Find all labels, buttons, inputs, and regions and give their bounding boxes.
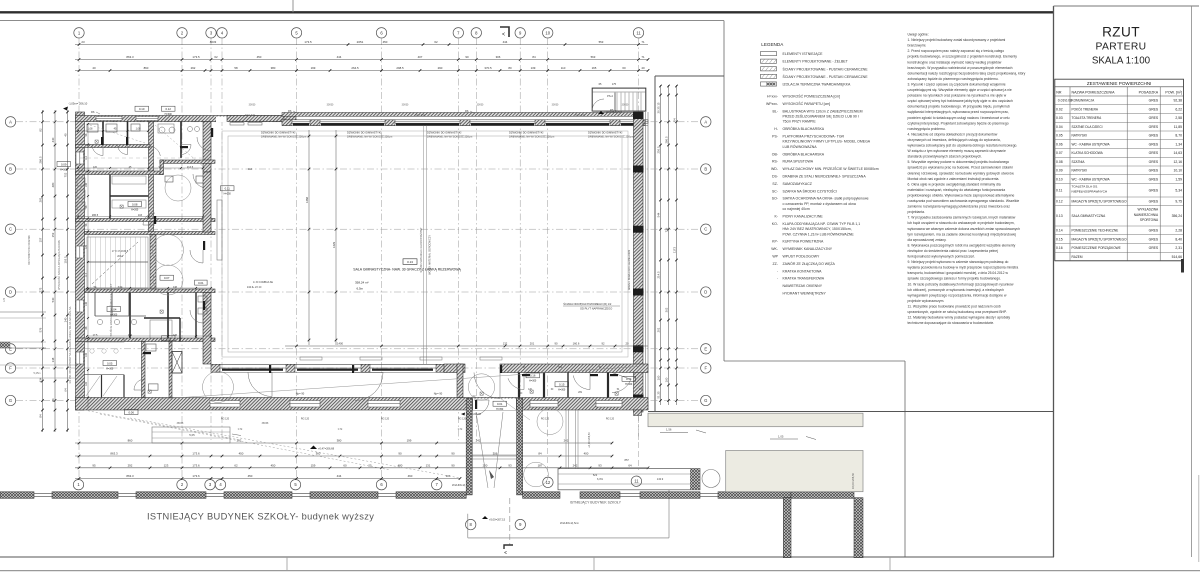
svg-text:KRZYWOLINIOWY FIRMY LIFTPLUS-: KRZYWOLINIOWY FIRMY LIFTPLUS- MODEL OMEG…	[783, 140, 871, 144]
svg-text:173.5: 173.5	[192, 55, 200, 59]
svg-text:PS-: PS-	[772, 135, 779, 139]
svg-text:B: B	[704, 167, 707, 172]
svg-text:ZAWÓR ZE ZŁĄCZKĄ DO WĘŻA: ZAWÓR ZE ZŁĄCZKĄ DO WĘŻA	[783, 261, 836, 266]
svg-text:30X30: 30X30	[477, 105, 484, 107]
svg-text:KLAPA ODDYMIAJĄCA NP. CSWW TYP: KLAPA ODDYMIAJĄCA NP. CSWW TYP F6-B 1,1	[783, 222, 861, 226]
svg-text:SKALA 1:100: SKALA 1:100	[1092, 56, 1151, 67]
svg-text:5,25m: 5,25m	[34, 372, 41, 375]
svg-text:+0,47=206,68: +0,47=206,68	[318, 447, 335, 451]
svg-text:DRABINA ZE STALI NIERDZEWNEJ-: DRABINA ZE STALI NIERDZEWNEJ- SPUSZCZANA	[783, 175, 867, 179]
svg-text:POMIESZCZENIE PORZĄDKOWE: POMIESZCZENIE PORZĄDKOWE	[1072, 246, 1121, 250]
svg-text:64: 64	[63, 388, 67, 392]
svg-text:NAWIERZCHNIA: NAWIERZCHNIA	[1134, 213, 1159, 217]
svg-text:projekcie wykonawczym.: projekcie wykonawczym.	[908, 299, 945, 303]
svg-text:okiennej i drzwiowej,: okiennej i drzwiowej, sprawdzić na budow…	[908, 171, 1015, 175]
svg-text:H=300: H=300	[529, 380, 537, 383]
svg-text:30X30: 30X30	[402, 105, 409, 107]
svg-text:ISTNIEJĄCY BUDYNEK SZKOŁY: ISTNIEJĄCY BUDYNEK SZKOŁY	[570, 501, 622, 505]
svg-text:funkcjonalności wykonywanych: funkcjonalności wykonywanych pomieszczeń…	[908, 255, 976, 259]
svg-text:0.13: 0.13	[407, 260, 413, 264]
svg-text:160: 160	[656, 375, 660, 380]
svg-text:146: 146	[173, 334, 178, 337]
svg-text:103: 103	[85, 182, 88, 187]
svg-text:D: D	[704, 290, 707, 295]
svg-text:1,05: 1,05	[778, 435, 784, 439]
svg-text:F: F	[9, 366, 12, 371]
svg-text:290: 290	[438, 66, 443, 70]
svg-text:0.09: 0.09	[61, 162, 67, 166]
svg-text:0.04: 0.04	[1056, 125, 1063, 129]
svg-text:60: 60	[622, 66, 626, 70]
svg-text:857: 857	[625, 458, 630, 462]
svg-text:ELEMENTY PROJEKTOWANE - ŻELBET: ELEMENTY PROJEKTOWANE - ŻELBET	[783, 59, 849, 64]
svg-text:SALA GIMNASTYCZNA- NAW. 30 GR: SALA GIMNASTYCZNA- NAW. 30 GRACZY Z ŁAWK…	[353, 268, 461, 272]
svg-text:38X38: 38X38	[177, 423, 184, 425]
svg-text:40: 40	[92, 66, 96, 70]
svg-text:5. Wszystkie wymiary: 5. Wszystkie wymiary podane w dokumentac…	[908, 160, 1010, 164]
svg-text:306: 306	[496, 55, 501, 59]
svg-text:lub bądź urządzeń w stosun: lub bądź urządzeń w stosunku do wskazany…	[908, 221, 1015, 225]
svg-text:173.6: 173.6	[192, 464, 200, 468]
svg-text:OD PŁYT NAPRAWCZEGO: OD PŁYT NAPRAWCZEGO	[580, 307, 612, 311]
svg-text:+ 2X 20: + 2X 20	[253, 286, 262, 289]
svg-text:175: 175	[612, 83, 617, 86]
svg-text:10: 10	[545, 30, 550, 35]
svg-text:NOŚNIK MATERIAŁU GEOMONTAŻOWY: NOŚNIK MATERIAŁU GEOMONTAŻOWY	[420, 227, 423, 272]
svg-text:E: E	[704, 346, 707, 351]
svg-text:132: 132	[503, 342, 508, 346]
svg-text:RS: RS	[610, 109, 614, 112]
svg-text:RURA SPUSTOWA: RURA SPUSTOWA	[783, 160, 814, 164]
svg-text:SZATNIE DLA DZIECI: SZATNIE DLA DZIECI	[1072, 125, 1103, 129]
svg-text:Npr= 242: Npr= 242	[575, 114, 585, 117]
svg-text:KO-: KO-	[772, 222, 779, 226]
svg-text:90: 90	[465, 55, 469, 59]
svg-text:173.5: 173.5	[304, 40, 312, 44]
svg-text:projektanta.: projektanta.	[908, 210, 926, 214]
svg-text:rozstrzygnięcia problemu.: rozstrzygnięcia problemu.	[908, 127, 946, 131]
svg-text:POW. [m²]: POW. [m²]	[1165, 91, 1182, 95]
svg-text:292: 292	[191, 66, 196, 70]
svg-text:173: 173	[38, 287, 42, 292]
svg-text:450: 450	[257, 55, 262, 59]
svg-text:90: 90	[451, 452, 455, 456]
svg-text:0.15: 0.15	[1056, 237, 1063, 241]
svg-text:523: 523	[593, 473, 598, 477]
svg-text:SIATKA OCHRONNA NA OKNA- siatk: SIATKA OCHRONNA NA OKNA- siatki poliprop…	[783, 197, 869, 201]
svg-text:112: 112	[85, 155, 88, 159]
svg-text:RG 120: RG 120	[458, 418, 467, 421]
svg-text:C M: C M	[458, 428, 462, 431]
svg-text:11. Wszystkie prace budowla: 11. Wszystkie prace budowlane prowadzić …	[908, 304, 1001, 308]
svg-text:BL-: BL-	[773, 109, 779, 113]
svg-text:transportu, budownictwa i g: transportu, budownictwa i gospodarki mor…	[908, 271, 1009, 275]
svg-text:materiałów i rozwiązań,: materiałów i rozwiązań, niezbędny do wła…	[908, 188, 1006, 192]
svg-text:niezbędne do średzienien: niezbędne do średzienienia całości prac …	[908, 249, 999, 253]
svg-text:zamienne rozwiązania wym: zamienne rozwiązania wymagają potwierdze…	[908, 205, 1011, 209]
svg-text:GRES: GRES	[1149, 125, 1159, 129]
svg-text:ŚCIANY PROJEKTOWANE - PUSTAKI: ŚCIANY PROJEKTOWANE - PUSTAKI CERAMICZNE	[783, 66, 869, 71]
svg-text:444: 444	[337, 55, 342, 59]
svg-text:1,59: 1,59	[1175, 177, 1182, 181]
svg-text:OD STRONY PD1 OKAPNIK: OD STRONY PD1 OKAPNIK	[28, 235, 31, 265]
svg-text:30X30: 30X30	[552, 105, 559, 107]
svg-text:1. Niniejszy projekt budowl: 1. Niniejszy projekt budowlany został sk…	[908, 38, 1006, 42]
svg-text:WPUST PODŁOGOWY: WPUST PODŁOGOWY	[783, 255, 821, 259]
svg-text:84: 84	[532, 55, 536, 59]
svg-text:ISTNIEJĄCY BUDYNEK SZKOŁY-: ISTNIEJĄCY BUDYNEK SZKOŁY- budynek wyższ…	[147, 512, 374, 522]
svg-text:wydania pozwolenia na budow: wydania pozwolenia na budowę w myśl prze…	[908, 266, 1019, 270]
svg-text:KURTYNA POWIETRZNA: KURTYNA POWIETRZNA	[783, 240, 824, 244]
svg-text:80: 80	[508, 66, 512, 70]
svg-text:SC-: SC-	[772, 189, 779, 193]
svg-text:GRES: GRES	[1149, 177, 1159, 181]
svg-text:WYSOKOŚĆ POMIESZCZENIA [cm]: WYSOKOŚĆ POMIESZCZENIA [cm]	[783, 94, 841, 99]
svg-text:RS-: RS-	[772, 160, 779, 164]
svg-text:standardu przewidywanych zda: standardu przewidywanych zdarzeń projekt…	[908, 155, 983, 159]
svg-text:WYSOKOŚĆ PARAPETU [cm]: WYSOKOŚĆ PARAPETU [cm]	[783, 101, 831, 106]
svg-text:NAWIETRZAK OKIENNY: NAWIETRZAK OKIENNY	[783, 284, 823, 288]
svg-text:H=260: H=260	[131, 208, 139, 211]
svg-text:KOMUNIKACJA: KOMUNIKACJA	[1072, 99, 1096, 103]
svg-text:SALA GIMNASTYCZNA: SALA GIMNASTYCZNA	[1072, 214, 1107, 218]
svg-text:WOZEK MATERIAŁ OGRODNICZY: WOZEK MATERIAŁ OGRODNICZY	[429, 235, 432, 275]
svg-text:1,56: 1,56	[666, 428, 672, 432]
svg-text:G: G	[9, 398, 12, 403]
svg-text:84: 84	[538, 452, 542, 456]
svg-text:0.16: 0.16	[1056, 246, 1063, 250]
svg-text:NAZWA POMIESZCZENIA: NAZWA POMIESZCZENIA	[1072, 91, 1116, 95]
svg-text:RS: RS	[91, 111, 95, 114]
svg-text:120: 120	[85, 381, 88, 386]
svg-text:konstrukcyjne oraz insta: konstrukcyjne oraz instalacje wymusić na…	[908, 60, 1002, 64]
svg-text:92: 92	[602, 342, 605, 346]
svg-text:KP-: KP-	[772, 240, 779, 244]
svg-text:60: 60	[343, 464, 347, 468]
svg-text:sprawie szczegółowego zakres: sprawie szczegółowego zakresu i formy pr…	[908, 277, 1002, 281]
svg-text:0.15: 0.15	[559, 383, 565, 387]
svg-text:RG 120: RG 120	[301, 418, 310, 421]
svg-text:30X30: 30X30	[622, 105, 629, 107]
svg-text:TOALETA TRENERA: TOALETA TRENERA	[1072, 116, 1103, 120]
svg-text:450: 450	[271, 464, 276, 468]
svg-text:sprawdzić po wykonaniu prac: sprawdzić po wykonaniu prac na budowie. …	[908, 166, 1013, 170]
svg-text:HM² 24V BEZ WIATROWNICY, 150X1: HM² 24V BEZ WIATROWNICY, 150X150cm,	[783, 227, 852, 231]
svg-text:ELEMENTY ISTNIEJĄCE: ELEMENTY ISTNIEJĄCE	[783, 52, 824, 56]
svg-text:62: 62	[214, 55, 218, 59]
svg-text:82: 82	[38, 128, 42, 132]
svg-text:25: 25	[368, 464, 372, 468]
svg-text:1,08: 1,08	[88, 128, 93, 131]
svg-text:860: 860	[128, 439, 133, 443]
svg-text:0.01\0.08: 0.01\0.08	[1058, 99, 1072, 103]
svg-text:BALUSTRADA WYS 110cm Z ZABEZPI: BALUSTRADA WYS 110cm Z ZABEZPIECZENIEM	[783, 109, 863, 113]
svg-text:PRZED ZEŚLIZGIWANIEM SIĘ DZIEC: PRZED ZEŚLIZGIWANIEM SIĘ DZIECI LUB 90 I	[783, 114, 859, 119]
svg-text:POW. CZYNNA 1,21m² LUB RÓWNOWA: POW. CZYNNA 1,21m² LUB RÓWNOWAŻNE	[783, 231, 855, 236]
svg-text:wykonawca we własnym zakres: wykonawca we własnym zakresie dokona wsz…	[908, 227, 1021, 231]
svg-text:dla wprowadzonej zmiany.: dla wprowadzonej zmiany.	[908, 238, 947, 242]
svg-text:173: 173	[3, 297, 6, 302]
svg-text:OBRÓBKA BLACHARSKA: OBRÓBKA BLACHARSKA	[783, 126, 825, 131]
svg-text:H=300: H=300	[106, 367, 114, 370]
svg-text:62: 62	[434, 40, 438, 44]
svg-text:IZOLACJA TERMICZNA TWARDA/MIĘK: IZOLACJA TERMICZNA TWARDA/MIĘKKA	[783, 83, 851, 87]
svg-text:GRES: GRES	[1149, 142, 1159, 146]
svg-text:WC - KABINA USTĘPOWA: WC - KABINA USTĘPOWA	[1072, 142, 1111, 146]
svg-text:dokumentacji projektu budowl: dokumentacji projektu budowlanego. W prz…	[908, 105, 1011, 109]
svg-text:286.5: 286.5	[38, 156, 42, 163]
svg-text:30.35.15: 30.35.15	[656, 102, 660, 113]
svg-text:GRES: GRES	[1149, 107, 1159, 111]
svg-text:8. Wykonawca poszczególnych: 8. Wykonawca poszczególnych robót ma uwz…	[908, 243, 1016, 247]
svg-text:0.07: 0.07	[164, 276, 170, 280]
svg-text:380: 380	[337, 439, 342, 443]
svg-text:0.12: 0.12	[1056, 200, 1063, 204]
svg-text:0.02: 0.02	[1056, 107, 1063, 111]
svg-text:370.5: 370.5	[484, 66, 492, 70]
svg-text:143.9: 143.9	[657, 477, 664, 481]
svg-text:F: F	[705, 366, 708, 371]
svg-text:Montaż obok naś zgodnie z: Montaż obok naś zgodnie z zaleceniami in…	[908, 177, 1000, 181]
svg-text:LEGENDA: LEGENDA	[761, 42, 784, 47]
svg-text:0.12: 0.12	[165, 107, 171, 111]
svg-text:5,34: 5,34	[1175, 189, 1182, 193]
svg-text:160: 160	[664, 377, 668, 382]
svg-text:173.6: 173.6	[192, 474, 200, 478]
svg-text:120: 120	[93, 166, 98, 169]
svg-text:uzupełniającymi się. Wszystk: uzupełniającymi się. Wszystkie elementy …	[908, 88, 1012, 92]
svg-text:wątpliwości interpretacyjny: wątpliwości interpretacyjnych, wykonawca…	[908, 110, 1010, 114]
svg-text:450: 450	[248, 474, 253, 478]
svg-text:H=300: H=300	[60, 168, 68, 171]
svg-text:544: 544	[656, 212, 660, 217]
svg-text:153: 153	[51, 232, 55, 237]
svg-text:12. Materiały budowlane win: 12. Materiały budowlane winny posiadać w…	[908, 316, 1011, 320]
svg-text:863.3: 863.3	[126, 55, 134, 59]
svg-text:RAZEM: RAZEM	[1072, 255, 1083, 259]
svg-text:SO-: SO-	[772, 197, 779, 201]
svg-text:165: 165	[592, 66, 597, 70]
svg-text:576: 576	[38, 327, 42, 332]
svg-text:zobowiązany będzie do pisem: zobowiązany będzie do pisemnego rozstrzy…	[908, 77, 999, 81]
svg-text:LUB RÓWNOWAŻNA: LUB RÓWNOWAŻNA	[783, 144, 818, 149]
svg-text:WYJŚCIE EWAKUACYJNE ŚWIETLICA: WYJŚCIE EWAKUACYJNE ŚWIETLICA SZKOŁY	[110, 283, 113, 336]
svg-text:GRES: GRES	[1149, 189, 1159, 193]
svg-text:WYŁAZ DACHOWY MIN. PRZEJŚCIE W: WYŁAZ DACHOWY MIN. PRZEJŚCIE W ŚWIETLE 8…	[783, 166, 879, 171]
svg-text:480: 480	[51, 182, 55, 187]
svg-text:3. Rysunki i części opisow: 3. Rysunki i części opisowe są częściami…	[908, 82, 1006, 86]
svg-text:SZATNIA: SZATNIA	[1072, 160, 1086, 164]
svg-text:103.5: 103.5	[63, 256, 67, 263]
svg-text:B: B	[9, 167, 12, 172]
svg-text:4. Niezależnie od sto: 4. Niezależnie od stopnia dokładności i …	[908, 132, 998, 136]
svg-text:RD 159- PAS NAPRAWY NA OKŁADZI: RD 159- PAS NAPRAWY NA OKŁADZICE 220cm, …	[69, 306, 72, 383]
svg-text:projektu budowlanego, w szc: projektu budowlanego, w szczególności z …	[908, 55, 1018, 59]
svg-text:KLATKA SCHODOWA: KLATKA SCHODOWA	[1072, 151, 1104, 155]
svg-text:RG 120: RG 120	[541, 418, 550, 421]
svg-text:20A1: 20A1	[117, 255, 123, 258]
svg-text:C: C	[9, 227, 12, 232]
svg-text:GRES: GRES	[1149, 134, 1159, 138]
svg-text:11: 11	[636, 30, 641, 35]
svg-text:14,63: 14,63	[1174, 151, 1183, 155]
svg-text:projektowanego obiektu. Wyko: projektowanego obiektu. Wykonawca może z…	[908, 193, 1015, 197]
svg-text:23: 23	[81, 40, 85, 44]
svg-text:242: 242	[573, 464, 578, 468]
svg-text:MAGAZYN SPRZĘTU SPORTOWEGO: MAGAZYN SPRZĘTU SPORTOWEGO	[1072, 200, 1128, 204]
svg-text:0.09: 0.09	[1056, 169, 1063, 173]
svg-text:140: 140	[63, 317, 67, 322]
svg-text:9. Niniejszy projekt wykona: 9. Niniejszy projekt wykonano w zakresie…	[908, 260, 1009, 264]
svg-text:264.5: 264.5	[351, 66, 359, 70]
svg-text:co najmniej 40cm: co najmniej 40cm	[783, 207, 810, 211]
svg-text:tym rozwiązaniem, ma za za: tym rozwiązaniem, ma za zadanie dokonać …	[908, 232, 1017, 236]
svg-text:114: 114	[248, 168, 253, 171]
svg-text:wymaganiami powyższego r: wymaganiami powyższego rozporządzenia, i…	[908, 293, 1007, 297]
svg-text:863.3: 863.3	[126, 474, 134, 478]
svg-text:WYSOKOŚĆ SZKOŁA ISTNIEJĄCA BUD: WYSOKOŚĆ SZKOŁA ISTNIEJĄCA BUDOWA	[58, 240, 61, 290]
svg-text:199: 199	[311, 66, 316, 70]
svg-text:powinien zgłosić to świadcz: powinien zgłosić to świadczącym usługi n…	[908, 116, 1010, 120]
svg-text:11: 11	[634, 479, 639, 484]
svg-text:rozwiązania pod warunkiem z: rozwiązania pod warunkiem zachowania wym…	[908, 199, 1020, 203]
svg-text:123: 123	[164, 464, 169, 468]
svg-text:450: 450	[239, 452, 244, 456]
svg-text:157: 157	[38, 237, 42, 242]
svg-text:90: 90	[555, 342, 558, 346]
svg-text:62: 62	[234, 464, 238, 468]
svg-text:286.5: 286.5	[664, 136, 668, 143]
svg-text:H=300: H=300	[558, 389, 566, 392]
svg-text:444: 444	[337, 474, 342, 478]
svg-text:0.06: 0.06	[128, 410, 134, 414]
svg-text:HYDRANT WEWNĘTRZNY: HYDRANT WEWNĘTRZNY	[783, 292, 827, 296]
svg-text:NR: NR	[1056, 91, 1062, 95]
svg-text:uprawnionych, zgodnie ze sz: uprawnionych, zgodnie ze sztuką budowlan…	[908, 310, 1007, 314]
svg-text:G: G	[704, 398, 707, 403]
svg-text:6. Okna ujęte w projekcie: 6. Okna ujęte w projekcie uwzględniają s…	[908, 182, 1001, 186]
svg-text:ZNAJDUJĄ 5cm: ZNAJDUJĄ 5cm	[560, 521, 579, 525]
svg-text:75cm PRZY RAMPIE: 75cm PRZY RAMPIE	[783, 120, 817, 124]
svg-text:10. W razie potrzeby dodat: 10. W razie potrzeby dodatkowych informa…	[908, 282, 1015, 286]
svg-text:pokazane na rysunkach oraz: pokazane na rysunkach oraz pokazane na r…	[908, 94, 1007, 98]
svg-text:199: 199	[407, 439, 412, 443]
svg-text:SZ-: SZ-	[772, 182, 778, 186]
svg-text:Uwagi ogólne:: Uwagi ogólne:	[908, 33, 929, 37]
svg-text:H=300: H=300	[165, 113, 173, 116]
svg-text:ZESTAWIENIE POWIERZCHNI: ZESTAWIENIE POWIERZCHNI	[1087, 81, 1152, 86]
svg-text:2051: 2051	[357, 40, 364, 44]
svg-text:WYMIENNIK KANALIZACYJNY: WYMIENNIK KANALIZACYJNY	[783, 247, 833, 251]
svg-text:0.08: 0.08	[132, 202, 138, 206]
svg-text:PARTERU: PARTERU	[1095, 42, 1146, 53]
svg-text:ZZ-: ZZ-	[773, 262, 779, 266]
svg-text:WD-: WD-	[771, 167, 779, 171]
svg-text:16,00=206,50: 16,00=206,50	[851, 472, 855, 488]
svg-text:1400: 1400	[337, 342, 343, 346]
svg-text:branżowych. W przypadku roz: branżowych. W przypadku rozbieżności w p…	[908, 66, 1013, 70]
svg-text:GRES: GRES	[1149, 169, 1159, 173]
svg-text:1,34: 1,34	[1175, 142, 1182, 146]
svg-text:RG 120: RG 120	[381, 418, 390, 421]
svg-text:12: 12	[546, 480, 551, 485]
svg-text:93: 93	[508, 464, 512, 468]
svg-text:540: 540	[51, 297, 55, 302]
svg-text:0.01: 0.01	[198, 281, 204, 285]
svg-text:0.05: 0.05	[107, 361, 113, 365]
svg-text:części opisowej winny być: części opisowej winny być traktowane jak…	[908, 99, 1014, 103]
svg-text:RG 120: RG 120	[606, 418, 615, 421]
svg-text:10,10: 10,10	[1174, 169, 1183, 173]
svg-text:444: 444	[503, 40, 508, 44]
svg-text:A: A	[501, 32, 506, 35]
svg-text:A: A	[9, 119, 12, 124]
svg-text:NATRYSKI: NATRYSKI	[1072, 169, 1088, 173]
svg-text:8,40: 8,40	[1175, 237, 1182, 241]
svg-text:863.3: 863.3	[110, 452, 118, 456]
svg-text:358,24 m²: 358,24 m²	[355, 281, 369, 285]
svg-text:H=xxx-: H=xxx-	[767, 95, 779, 99]
svg-text:C M: C M	[338, 428, 342, 431]
svg-text:D: D	[9, 290, 12, 295]
svg-text:+0,00=207,15: +0,00=207,15	[606, 110, 623, 114]
svg-text:1429: 1429	[332, 242, 336, 248]
svg-text:160.6: 160.6	[573, 342, 580, 346]
svg-text:czytelnej interpretacji. Pro: czytelnej interpretacji. Projektant zobo…	[908, 121, 1009, 125]
svg-text:9,75: 9,75	[1175, 200, 1182, 204]
svg-text:95: 95	[92, 464, 96, 468]
svg-text:173.6: 173.6	[192, 452, 200, 456]
svg-text:0.11: 0.11	[225, 187, 231, 191]
svg-text:356,24: 356,24	[1172, 214, 1182, 218]
svg-text:256.5: 256.5	[656, 146, 660, 153]
svg-text:8,70: 8,70	[1175, 134, 1182, 138]
svg-text:RS: RS	[288, 110, 292, 113]
svg-text:12,16: 12,16	[1174, 160, 1183, 164]
svg-text:148: 148	[51, 357, 55, 362]
svg-text:WC - KABINA USTĘPOWA: WC - KABINA USTĘPOWA	[1072, 177, 1111, 181]
svg-text:292: 292	[128, 464, 133, 468]
svg-text:Npr= 242: Npr= 242	[245, 114, 255, 117]
svg-text:110: 110	[561, 66, 566, 70]
svg-text:wykonawca zobowiązany jest: wykonawca zobowiązany jest do uzyskania …	[908, 144, 1018, 148]
svg-text:139: 139	[531, 66, 536, 70]
svg-text:140: 140	[85, 352, 88, 357]
svg-text:38X38: 38X38	[262, 423, 269, 425]
svg-text:380: 380	[271, 66, 276, 70]
svg-text:0.11: 0.11	[1056, 189, 1062, 193]
svg-text:-1,05m= 206,10: -1,05m= 206,10	[68, 102, 87, 106]
svg-text:726: 726	[664, 227, 668, 232]
svg-text:1173: 1173	[672, 247, 676, 253]
svg-text:SZAFKA NA ŚRODKI CZYSTOŚCI: SZAFKA NA ŚRODKI CZYSTOŚCI	[783, 188, 837, 193]
svg-text:0.03: 0.03	[165, 337, 171, 341]
svg-text:PLATFORMA PRZYSCHODOWA- TGR: PLATFORMA PRZYSCHODOWA- TGR	[783, 135, 845, 139]
svg-text:POSADZKA: POSADZKA	[1139, 91, 1159, 95]
svg-text:2,31: 2,31	[1175, 246, 1182, 250]
svg-text:1,08: 1,08	[136, 128, 141, 131]
svg-text:1468: 1468	[305, 197, 309, 203]
svg-text:201: 201	[656, 327, 660, 332]
svg-text:450: 450	[383, 40, 388, 44]
svg-text:553: 553	[599, 40, 604, 44]
svg-text:PS-4: PS-4	[607, 94, 613, 98]
svg-text:NIEPEŁNOSPRAWNYCH: NIEPEŁNOSPRAWNYCH	[1072, 189, 1108, 193]
svg-text:PIONY KANALIZACYJNE: PIONY KANALIZACYJNE	[783, 215, 824, 219]
svg-text:86: 86	[51, 398, 55, 402]
svg-text:dokumentacji należy rozstrzy: dokumentacji należy rozstrzygnąć bezpośr…	[908, 71, 1026, 75]
svg-text:214.5: 214.5	[656, 271, 660, 278]
